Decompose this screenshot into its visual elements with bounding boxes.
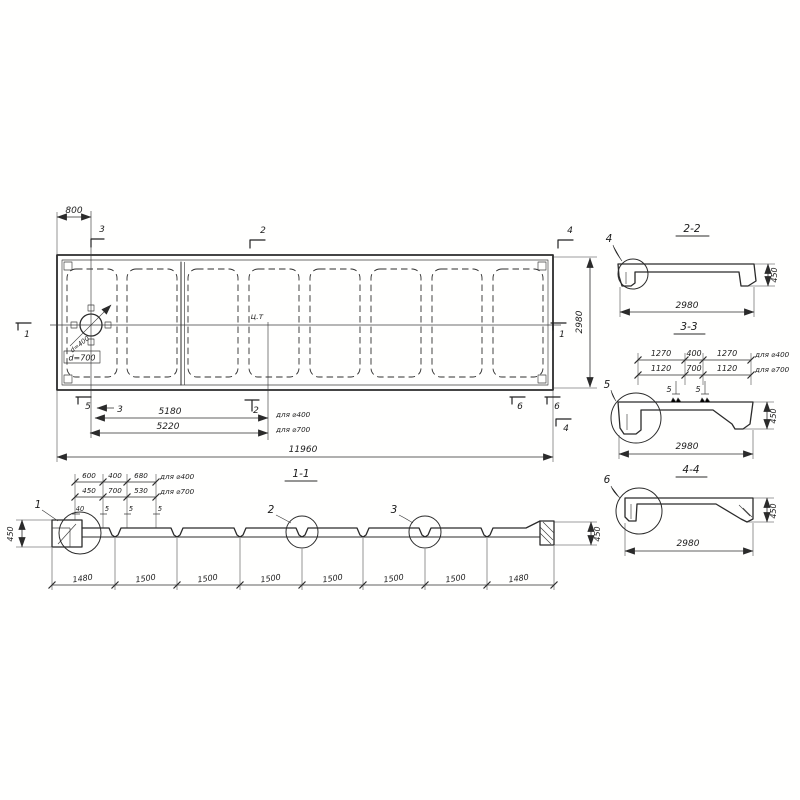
corner-anchor-icon [538,262,546,270]
section-marks: 3 2 4 1 1 5 6 6 4 3 2 [16,225,573,434]
dim-1500-5: 1500 [383,573,404,585]
detail-2-leader [276,515,291,523]
dim-1500-4: 1500 [322,573,343,585]
dim-2980-s22: 2980 [676,301,699,311]
dim-1480-1: 1480 [72,573,93,585]
corner-anchor-icon [64,375,72,383]
dim-1500-2: 1500 [197,573,218,585]
detail-circle-3 [409,516,441,548]
hatch-lines [739,505,752,517]
dim-450-row: 450 [82,486,96,495]
dim-5180-note: для ⌀400 [275,410,311,419]
dim-450-s33: 450 [769,408,778,423]
detail-3-label: 3 [391,504,398,516]
dim-450-s22: 450 [770,267,779,282]
section-1-1-title: 1-1 [292,468,309,480]
dim-1500-1: 1500 [135,573,156,585]
dim-1120-l: 1120 [651,364,671,373]
plan-view: d=400 d=700 ц.т 800 2980 5180 для ⌀400 5… [16,206,597,462]
flag-5-b: 5 [695,385,700,394]
detail-circle-6 [616,488,662,534]
mark-2-top: 2 [260,226,266,236]
dim-680: 680 [134,471,148,480]
mark-3-top: 3 [99,225,105,235]
mark-6-bottom-a: 6 [517,402,523,412]
technical-drawing: d=400 d=700 ц.т 800 2980 5180 для ⌀400 5… [0,0,800,800]
detail-2-label: 2 [268,504,275,516]
detail-5-label: 5 [604,379,611,391]
hatch-lines [540,522,554,544]
detail-6-leader [611,486,620,498]
dim-530: 530 [134,486,148,495]
dim-1120-r: 1120 [717,364,737,373]
row1-note-s11: для ⌀400 [159,472,195,481]
center-of-gravity-label: ц.т [251,312,264,321]
left-end-block [52,520,82,547]
row2-note-s11: для ⌀700 [159,487,195,496]
flag-5-3: 5 [158,505,162,513]
dim-1480-2: 1480 [508,573,529,585]
dim-1500-6: 1500 [445,573,466,585]
mark-5-bottom: 5 [85,402,91,412]
section-3-3: 3-3 1270 400 1270 для ⌀400 1120 700 1120… [604,321,790,459]
detail-5-leader [611,390,616,401]
dim-700: 700 [686,364,701,373]
section-2-2: 2-2 4 450 2980 [606,223,779,317]
detail-4-leader [613,245,622,261]
dim-600: 600 [82,471,96,480]
section-3-3-title: 3-3 [680,321,697,333]
dim-2980-s44: 2980 [677,539,700,549]
detail-1-label: 1 [35,499,42,511]
section-3-3-profile [618,402,753,434]
flag-5-a: 5 [666,385,671,394]
section-2-2-profile [618,264,756,286]
dim-700-row: 700 [108,486,122,495]
dim-2980-s33: 2980 [676,442,699,452]
section-4-4-title: 4-4 [682,464,699,476]
dim-5220: 5220 [157,422,180,432]
dim-450-left: 450 [6,526,15,541]
detail-3-leader [399,515,413,523]
dim-row2-note: для ⌀700 [754,365,790,374]
mark-4-bottom: 4 [563,424,569,434]
dim-1270-l: 1270 [651,349,671,358]
corner-anchor-icon [538,375,546,383]
dim-5220-note: для ⌀700 [275,425,311,434]
right-end-block [540,521,554,545]
dim-5180: 5180 [159,407,182,417]
mark-1-left: 1 [24,330,30,340]
section-1-1: 1-1 600 400 680 для ⌀400 450 700 530 для… [6,468,602,590]
lifting-hole: d=400 d=700 [64,305,111,363]
section-1-1-top-edge [82,521,540,537]
embed-mark [671,398,681,402]
section-4-4: 4-4 6 450 2980 [604,464,778,556]
section-2-2-title: 2-2 [683,223,700,235]
detail-circle-2 [286,516,318,548]
flag-5-2: 5 [129,505,133,513]
corner-anchor-icon [64,262,72,270]
panel-cells [67,269,543,377]
slab-inner-edge [62,260,548,385]
dim-2980-plan: 2980 [575,310,585,333]
slab-outline [57,255,553,390]
dim-400-s11: 400 [108,471,122,480]
detail-1-leader [42,510,58,521]
mark-4-top: 4 [567,226,573,236]
dim-450-s44: 450 [769,503,778,518]
detail-4-label: 4 [606,233,613,245]
dim-800: 800 [65,206,82,216]
mark-2-bottom: 2 [253,406,259,416]
dim-1270-r: 1270 [717,349,737,358]
detail-circle-1 [59,512,101,554]
dim-400: 400 [686,349,701,358]
dim-row1-note: для ⌀400 [754,350,790,359]
hole-diameter-label-400: d=400 [69,334,91,354]
drawing-sheet: d=400 d=700 ц.т 800 2980 5180 для ⌀400 5… [0,0,800,800]
mark-6-bottom-b: 6 [554,402,560,412]
hole-diameter-label-700: d=700 [68,354,95,363]
mark-1-right: 1 [559,330,565,340]
embed-mark [700,398,710,402]
dim-1500-3: 1500 [260,573,281,585]
detail-circle-5 [611,393,661,443]
dim-11960: 11960 [289,445,318,455]
detail-6-label: 6 [604,474,611,486]
mark-3-bottom: 3 [117,405,123,415]
flag-5-1: 5 [105,505,109,513]
dim-450-right: 450 [593,526,602,541]
section-4-4-profile [625,498,753,522]
